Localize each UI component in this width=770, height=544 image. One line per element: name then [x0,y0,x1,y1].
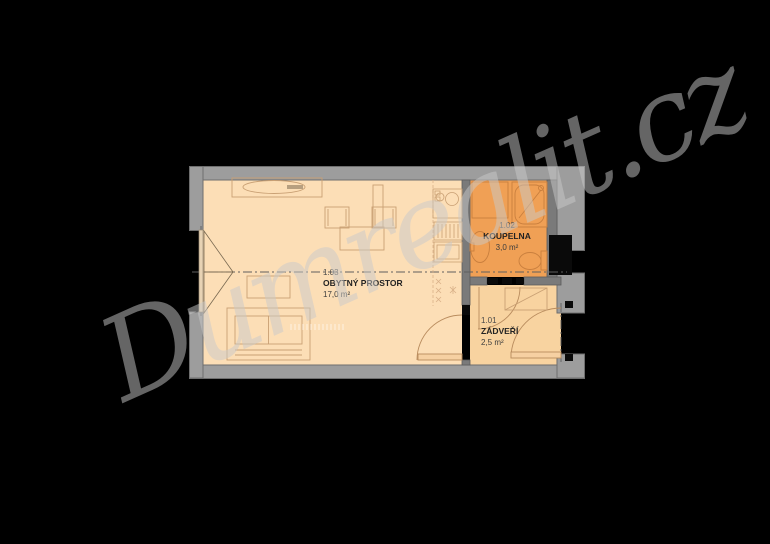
sliding-door-segment [516,278,524,284]
sliding-door-segment [487,278,498,284]
entry-door-jamb-top [565,301,573,308]
entry-door-jamb-bottom [565,354,573,361]
floorplan: 1.03 OBYTNÝ PROSTOR 17,0 m² 1.02 KOUPELN… [189,166,585,379]
fine-print [290,324,345,330]
floorplan-image: 1.03 OBYTNÝ PROSTOR 17,0 m² 1.02 KOUPELN… [0,0,770,544]
window-frame [199,230,203,312]
floorplan-drawing [189,166,585,379]
door-jamb [462,305,470,315]
installation-shaft [549,235,572,275]
sliding-door-segment [502,278,512,284]
